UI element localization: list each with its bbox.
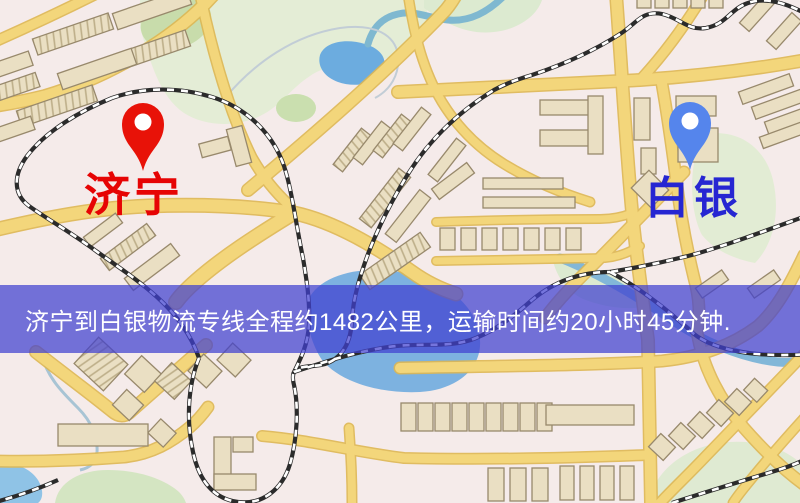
destination-city-label: 白银	[645, 177, 743, 221]
route-info-banner: 济宁到白银物流专线全程约1482公里，运输时间约20小时45分钟.	[0, 285, 800, 353]
map-canvas	[0, 0, 800, 503]
destination-pin-hole	[682, 113, 699, 130]
route-info-text: 济宁到白银物流专线全程约1482公里，运输时间约20小时45分钟.	[0, 302, 731, 337]
origin-pin-hole	[135, 114, 152, 131]
map-image[interactable]: 济宁 白银 济宁到白银物流专线全程约1482公里，运输时间约20小时45分钟.	[0, 0, 800, 503]
origin-city-label: 济宁	[84, 172, 184, 218]
